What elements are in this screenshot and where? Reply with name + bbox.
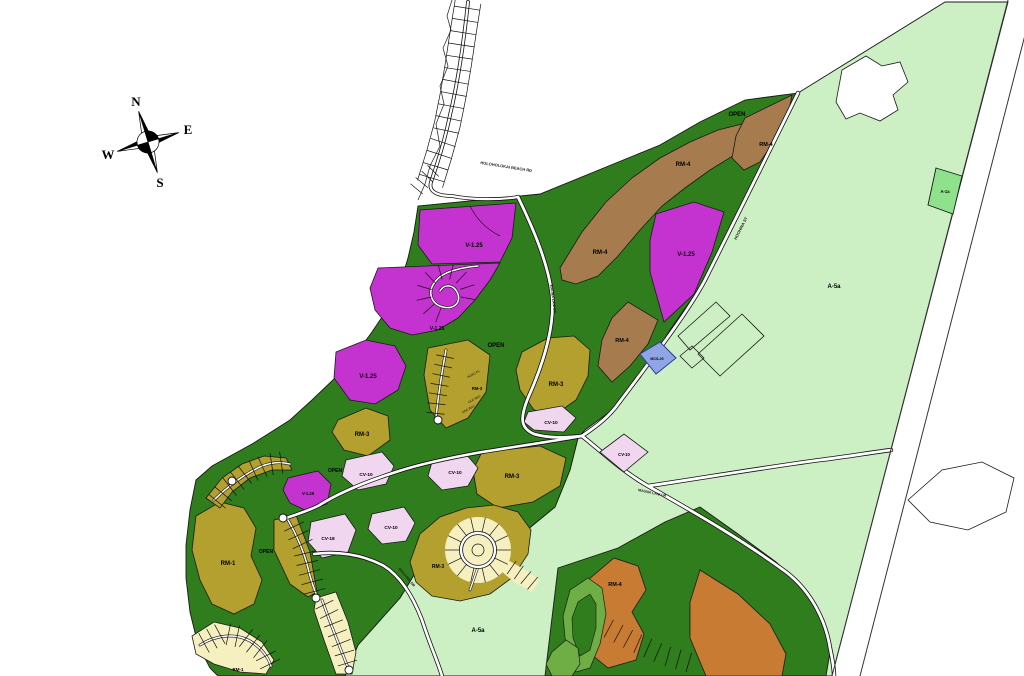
label-v125-left: V-1.25 <box>359 374 377 380</box>
label-mcs20: MCS-20 <box>650 357 663 361</box>
compass-rose: N E S W <box>102 94 193 190</box>
compass-e: E <box>184 122 193 137</box>
label-open-bl: OPEN <box>259 549 274 555</box>
label-rm4-br: RM-4 <box>608 582 622 588</box>
label-open-mid: OPEN <box>487 343 504 349</box>
label-open-tr: OPEN <box>728 112 745 118</box>
compass-n: N <box>131 94 141 109</box>
label-rm3-left: RM-3 <box>355 432 370 438</box>
label-rm1-b: RM-1 <box>233 667 244 672</box>
compass-star <box>108 102 188 182</box>
label-rm3-bottom: RM-3 <box>432 564 444 570</box>
label-a5a-main: A-5a <box>827 284 841 290</box>
label-v125-tr: V-1.25 <box>677 252 695 258</box>
zoning-map: N E S W OPEN RM-4 RM-4 RM-4 V-1.25 A-1a … <box>0 0 1024 676</box>
label-rm3-right: RM-3 <box>549 382 564 388</box>
label-v125-top: V-1.25 <box>465 243 483 249</box>
label-beach-rd: HOLOHOLOKAI BEACH RD <box>480 160 532 173</box>
label-rm4-center: RM-4 <box>676 162 691 168</box>
map-canvas: N E S W OPEN RM-4 RM-4 RM-4 V-1.25 A-1a … <box>0 0 1024 676</box>
culdesac-island <box>472 544 484 556</box>
parcel-v125-top <box>418 203 516 264</box>
label-cv10-b: CV-10 <box>448 470 462 476</box>
label-open-left: OPEN <box>328 468 343 474</box>
label-v125-sub: V-1.25 <box>430 326 445 332</box>
label-a1a: A-1a <box>940 189 950 194</box>
label-rm4-right: RM-4 <box>759 142 773 148</box>
parcel-white-southeast <box>908 462 1014 530</box>
label-cv10-a: CV-10 <box>544 420 558 426</box>
label-rm1: RM-1 <box>221 561 236 567</box>
compass-s: S <box>156 175 163 190</box>
label-cv18: CV-18 <box>321 536 335 542</box>
label-a5a-bottom: A-5a <box>471 628 485 634</box>
label-v125-bl: V-1.25 <box>302 491 315 496</box>
label-cv10-d: CV-10 <box>384 525 398 531</box>
label-cv10-e: CV-10 <box>618 452 630 457</box>
label-rm3-big: RM-3 <box>505 474 520 480</box>
label-rm4-left: RM-4 <box>593 250 608 256</box>
compass-w: W <box>102 147 115 162</box>
label-cv10-c: CV-10 <box>359 472 373 478</box>
label-rm4-road: RM-4 <box>615 338 629 344</box>
label-rm3-streets: RM-3 <box>472 386 483 391</box>
